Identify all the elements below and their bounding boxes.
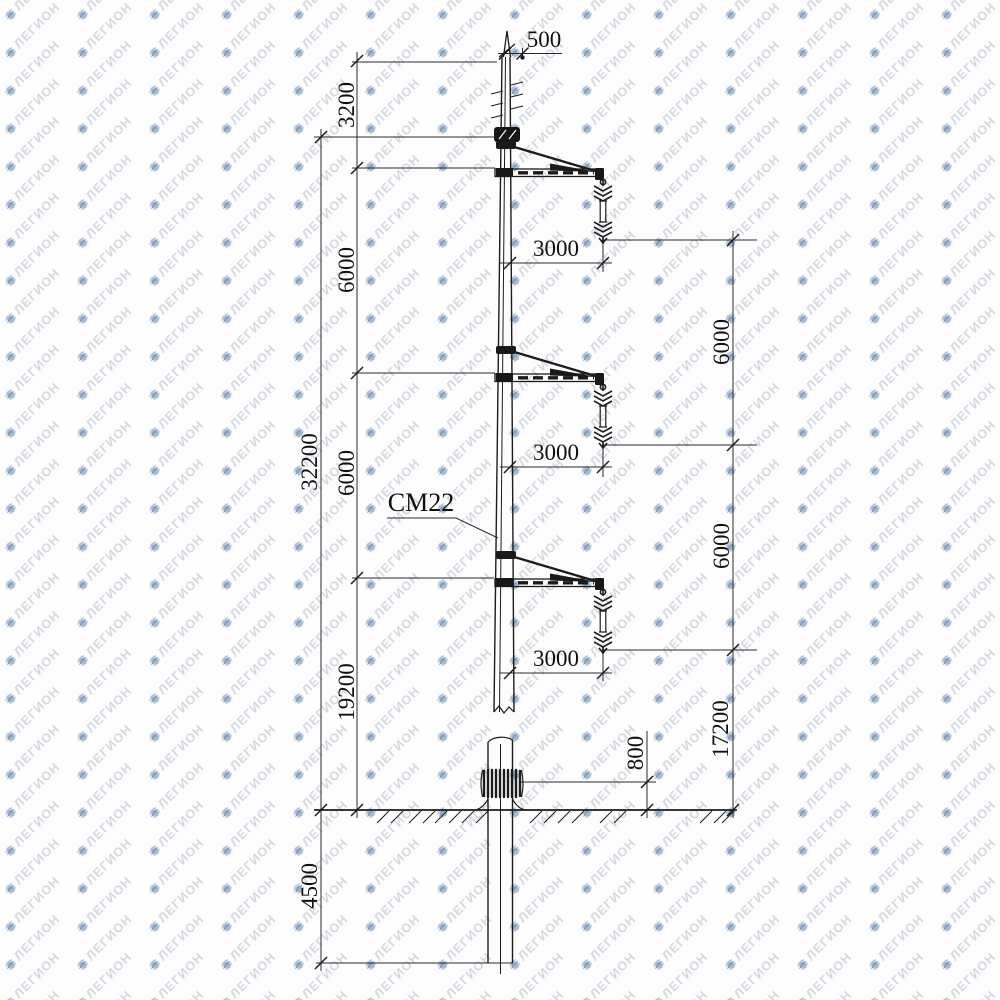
dim-label-3200: 3200 [334,82,359,128]
technical-drawing: ЛЕГИОН ЛЕГИОН ЛЕГИОН ЛЕГИОН [0,0,1000,1000]
pole-model-label: СМ22 [388,488,454,517]
brace-clamp [496,346,516,354]
brace-clamp [496,551,516,559]
dim-label-6000-left-upper: 6000 [334,247,359,293]
dim-label-32200: 32200 [297,433,322,491]
dim-label-4500: 4500 [297,863,322,909]
dim-label-3000-top: 3000 [533,236,579,261]
dim-label-6000-left-lower: 6000 [334,450,359,496]
dim-label-17200: 17200 [708,700,733,758]
dim-label-500: 500 [527,27,562,52]
dim-label-3000-middle: 3000 [533,440,579,465]
ground-wire-clamp [494,127,520,142]
dim-label-800: 800 [623,736,648,771]
dim-label-6000-right-lower: 6000 [709,523,734,569]
brace-clamp [496,141,516,149]
dim-label-19200: 19200 [334,663,359,721]
ground-wire-point [520,55,524,59]
dim-label-6000-right-upper: 6000 [709,319,734,365]
pole-bolt [496,373,513,382]
pole-drawing-screenshot: ЛЕГИОН ЛЕГИОН ЛЕГИОН ЛЕГИОН [0,0,1000,1000]
dim-label-3000-bottom: 3000 [533,646,579,671]
pole-bolt [496,168,513,177]
pole-bolt [496,578,513,587]
